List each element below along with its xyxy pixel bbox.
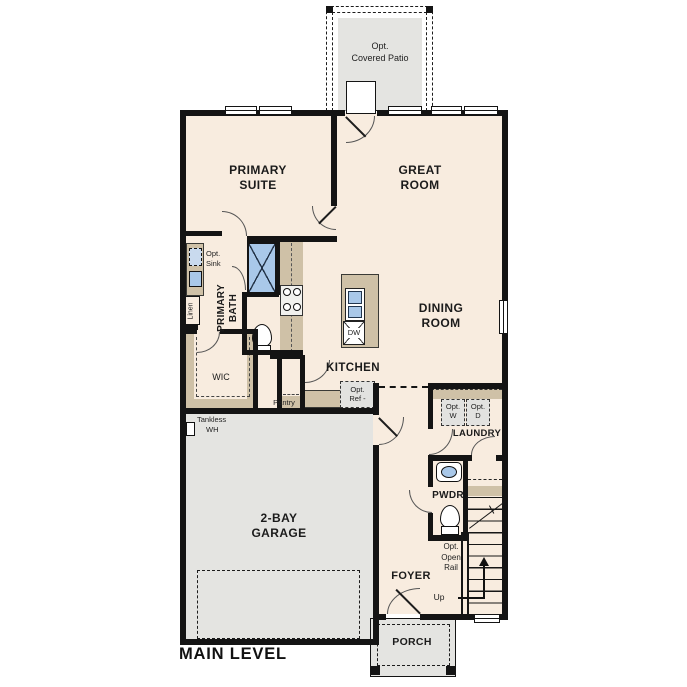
dining-line2: ROOM bbox=[422, 316, 461, 330]
up-arrow-head bbox=[479, 557, 489, 566]
patio-line2: Covered Patio bbox=[351, 53, 408, 63]
room-label-porch: PORCH bbox=[377, 636, 447, 648]
wall bbox=[183, 329, 197, 334]
island-sink-basin bbox=[348, 291, 362, 304]
floor-plan: DW Opt. W Opt. D Opt. Ref - bbox=[0, 0, 687, 687]
room-label-great-room: GREAT ROOM bbox=[370, 163, 470, 193]
window bbox=[225, 106, 257, 115]
up-arrow-base bbox=[458, 597, 485, 599]
wall bbox=[183, 231, 222, 236]
wall bbox=[428, 383, 508, 389]
room-label-primary-bath: PRIMARY BATH bbox=[216, 284, 240, 332]
laundry-counter bbox=[431, 389, 502, 399]
porch-post bbox=[446, 666, 455, 675]
optional-sink bbox=[189, 248, 202, 266]
tankless-water-heater bbox=[186, 422, 195, 436]
counter-garage-wall bbox=[303, 390, 341, 408]
primary-bath-line1: PRIMARY bbox=[216, 284, 227, 332]
room-label-pantry: Pantry bbox=[264, 398, 304, 408]
patio-post bbox=[426, 6, 433, 13]
wall bbox=[242, 292, 247, 355]
primary-bath-line2: BATH bbox=[228, 294, 239, 322]
label-opt-sink: Opt. Sink bbox=[203, 249, 233, 268]
patio-line1: Opt. bbox=[371, 41, 388, 51]
wall bbox=[496, 455, 508, 461]
label-opt-open-rail: Opt. Open Rail bbox=[434, 542, 468, 574]
dishwasher-label: DW bbox=[345, 328, 363, 338]
dw-text: DW bbox=[348, 328, 361, 337]
opening-dashline bbox=[379, 386, 428, 388]
great-room-line2: ROOM bbox=[401, 178, 440, 192]
garage-line2: GARAGE bbox=[251, 526, 306, 540]
wall bbox=[247, 236, 337, 242]
range bbox=[280, 285, 303, 316]
room-label-pwdr: PWDR bbox=[418, 490, 478, 501]
window bbox=[431, 106, 462, 115]
up-arrow-shaft bbox=[483, 566, 485, 598]
patio-post bbox=[326, 6, 333, 13]
room-label-foyer: FOYER bbox=[376, 570, 446, 582]
open-rail-line3: Rail bbox=[444, 563, 458, 572]
great-room-line1: GREAT bbox=[398, 163, 441, 177]
shower bbox=[247, 242, 277, 294]
island-sink-basin bbox=[348, 306, 362, 318]
room-label-wic: WIC bbox=[196, 372, 246, 382]
primary-suite-line1: PRIMARY bbox=[229, 163, 287, 177]
bath-sink bbox=[189, 271, 202, 287]
pwdr-sink-basin bbox=[441, 466, 457, 478]
optional-dryer: Opt. D bbox=[466, 399, 490, 426]
open-rail-line1: Opt. bbox=[443, 542, 458, 551]
window bbox=[499, 300, 508, 334]
toilet-tank bbox=[441, 526, 459, 535]
label-linen: Linen bbox=[188, 302, 195, 319]
garage-line1: 2-BAY bbox=[261, 511, 298, 525]
room-label-patio: Opt. Covered Patio bbox=[330, 40, 430, 64]
opt-d-line2: D bbox=[475, 411, 480, 420]
opt-w-line1: Opt. bbox=[446, 402, 460, 411]
tankless-line1: Tankless bbox=[197, 415, 226, 424]
opt-sink-line2: Sink bbox=[206, 259, 221, 268]
primary-suite-line2: SUITE bbox=[239, 178, 276, 192]
window bbox=[388, 106, 422, 115]
room-label-garage: 2-BAY GARAGE bbox=[219, 511, 339, 541]
tankless-line2: WH bbox=[197, 425, 219, 434]
optional-washer: Opt. W bbox=[441, 399, 465, 426]
wall bbox=[243, 292, 279, 297]
stair-closet-dashline bbox=[468, 479, 502, 480]
opt-d-line1: Opt. bbox=[471, 402, 485, 411]
window bbox=[259, 106, 292, 115]
opt-sink-line1: Opt. bbox=[206, 249, 220, 258]
wall bbox=[180, 110, 186, 645]
room-label-dining: DINING ROOM bbox=[391, 301, 491, 331]
wall bbox=[428, 461, 433, 487]
patio-door-rect bbox=[346, 81, 376, 114]
pantry-dashline bbox=[283, 394, 299, 395]
wall bbox=[277, 242, 280, 295]
label-up: Up bbox=[428, 592, 450, 602]
wall bbox=[253, 329, 258, 413]
opt-ref-line2: Ref - bbox=[349, 394, 365, 403]
dining-line1: DINING bbox=[419, 301, 463, 315]
wall bbox=[428, 389, 433, 429]
opt-w-line2: W bbox=[449, 411, 456, 420]
room-label-primary-suite: PRIMARY SUITE bbox=[208, 163, 308, 193]
wall bbox=[270, 353, 303, 359]
wall bbox=[502, 110, 508, 620]
open-rail-line2: Open bbox=[441, 553, 461, 562]
room-label-kitchen: KITCHEN bbox=[312, 361, 394, 376]
room-label-laundry: LAUNDRY bbox=[433, 428, 521, 439]
optional-refrigerator: Opt. Ref - bbox=[340, 381, 375, 408]
wall bbox=[331, 110, 337, 206]
toilet-bowl bbox=[440, 505, 460, 528]
opt-ref-line1: Opt. bbox=[350, 385, 364, 394]
porch-post bbox=[371, 666, 380, 675]
wall bbox=[373, 445, 379, 645]
window bbox=[464, 106, 498, 115]
wall bbox=[180, 408, 379, 414]
plan-title: MAIN LEVEL bbox=[179, 645, 339, 664]
garage-door-outline bbox=[197, 570, 360, 639]
label-tankless-wh: Tankless WH bbox=[197, 415, 247, 434]
wic-shelf-left bbox=[186, 333, 194, 409]
window bbox=[474, 614, 500, 623]
